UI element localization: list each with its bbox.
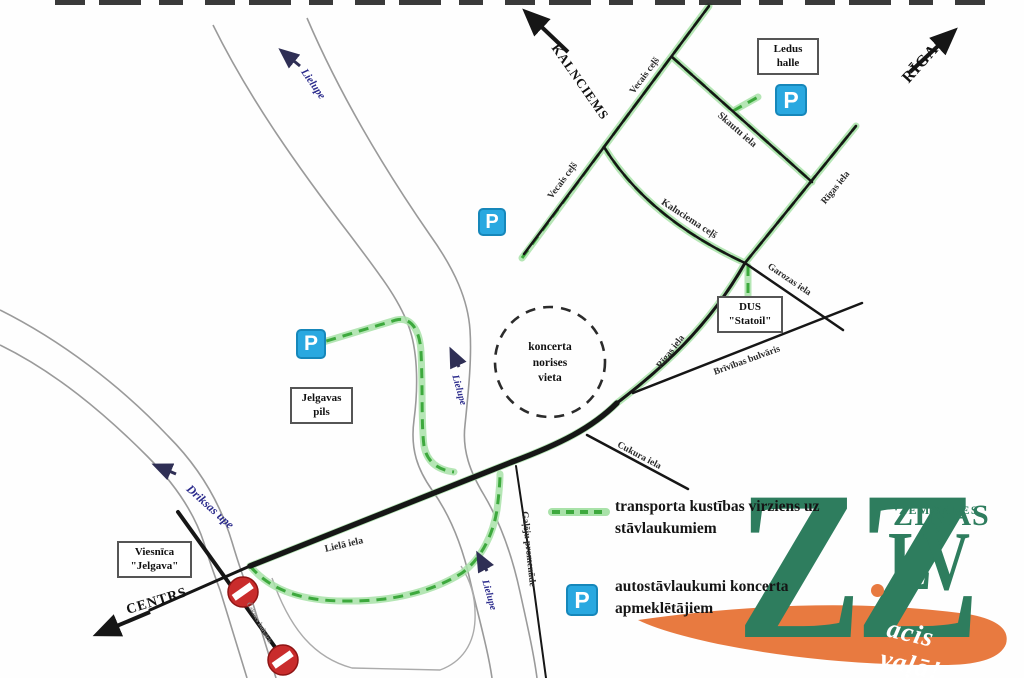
venue-label: koncerta norises vieta xyxy=(505,340,595,387)
place-jelgavas-pils: Jelgavas pils xyxy=(290,387,353,424)
place-viesnica-line2: "Jelgava" xyxy=(131,560,179,572)
place-viesnica-line1: Viesnīca xyxy=(135,546,174,558)
place-pils-line2: pils xyxy=(313,406,330,418)
parking-p: P xyxy=(574,587,589,614)
parking-p: P xyxy=(485,211,498,234)
legend-route-label: transporta kustības virziens uz stāvlauk… xyxy=(615,496,875,541)
parking-p: P xyxy=(304,332,318,356)
place-viesnica-jelgava: Viesnīca "Jelgava" xyxy=(117,541,192,578)
place-ledus-halle-line1: Ledus xyxy=(774,43,803,55)
venue-line1: koncerta xyxy=(528,341,571,353)
traffic-scheme-map: ZZ ZIŅAS ZEMGALES LV acis vaļā! KALNCIEM… xyxy=(0,0,1024,678)
parking-p: P xyxy=(783,87,798,114)
parking-icon-center: P xyxy=(478,208,506,236)
place-dus-line2: "Statoil" xyxy=(729,315,772,327)
legend-parking-icon: P xyxy=(566,584,598,616)
logo-lv-text: LV xyxy=(888,520,967,604)
legend-parking-label: autostāvlaukumi koncerta apmeklētājiem xyxy=(615,576,875,621)
place-ledus-halle: Ledus halle xyxy=(757,38,819,75)
venue-line3: vieta xyxy=(538,372,562,384)
place-pils-line1: Jelgavas xyxy=(302,392,342,404)
place-ledus-halle-line2: halle xyxy=(777,57,800,69)
place-dus-statoil: DUS "Statoil" xyxy=(717,296,783,333)
parking-icon-pils: P xyxy=(296,329,326,359)
cropped-headline-fragment xyxy=(55,0,985,5)
venue-line2: norises xyxy=(533,357,568,369)
place-dus-line1: DUS xyxy=(739,301,761,313)
parking-icon-ledus-halle: P xyxy=(775,84,807,116)
